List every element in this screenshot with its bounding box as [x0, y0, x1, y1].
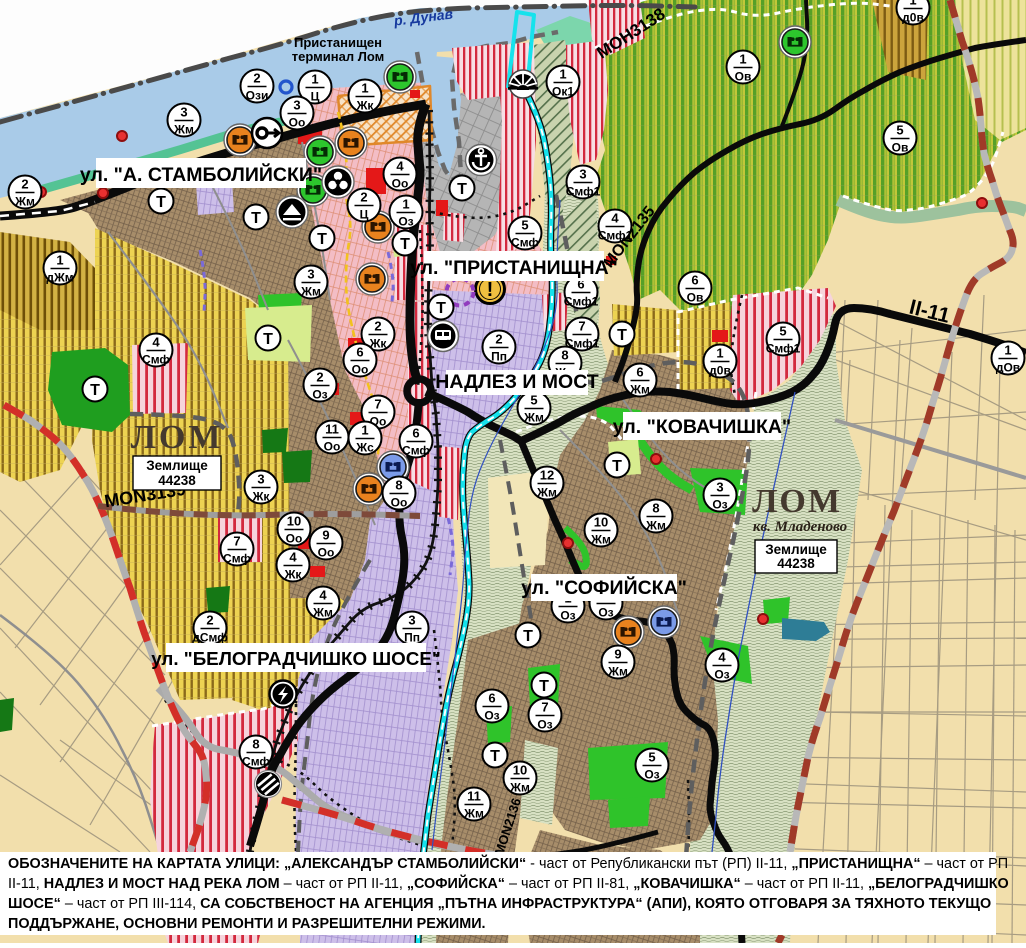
- svg-text:T: T: [400, 236, 410, 253]
- svg-text:2: 2: [316, 370, 323, 385]
- svg-text:Оз: Оз: [537, 718, 552, 732]
- svg-text:НАДЛЕЗ И МОСТ: НАДЛЕЗ И МОСТ: [435, 371, 599, 393]
- svg-text:Жк: Жк: [284, 568, 303, 582]
- svg-text:1: 1: [559, 67, 566, 82]
- svg-text:Смф: Смф: [223, 552, 251, 566]
- svg-text:Ози: Ози: [246, 89, 269, 103]
- svg-text:Жм: Жм: [509, 781, 530, 795]
- svg-text:T: T: [612, 458, 622, 475]
- svg-text:8: 8: [395, 478, 402, 493]
- svg-text:T: T: [523, 628, 533, 645]
- svg-text:Пристанищен: Пристанищен: [294, 35, 382, 50]
- svg-text:3: 3: [408, 613, 415, 628]
- svg-text:9: 9: [322, 528, 329, 543]
- svg-text:2: 2: [374, 319, 381, 334]
- svg-text:3: 3: [307, 267, 314, 282]
- svg-text:1: 1: [361, 423, 368, 438]
- svg-text:9: 9: [614, 647, 621, 662]
- svg-text:Оз: Оз: [560, 609, 575, 623]
- svg-text:10: 10: [287, 514, 301, 529]
- svg-text:5: 5: [779, 324, 786, 339]
- svg-text:ул. "БЕЛОГРАДЧИШКО ШОСЕ": ул. "БЕЛОГРАДЧИШКО ШОСЕ": [151, 648, 441, 669]
- svg-text:Жм: Жм: [300, 285, 321, 299]
- svg-text:Оз: Оз: [714, 668, 729, 682]
- svg-text:Ов: Ов: [687, 291, 704, 305]
- svg-text:3: 3: [257, 472, 264, 487]
- svg-text:12: 12: [540, 468, 554, 483]
- svg-text:Землище: Землище: [765, 542, 827, 557]
- svg-text:Смф: Смф: [402, 444, 430, 458]
- svg-text:Оз: Оз: [398, 215, 413, 229]
- svg-text:Жм: Жм: [536, 486, 557, 500]
- svg-text:1: 1: [361, 81, 368, 96]
- svg-text:T: T: [490, 748, 500, 765]
- svg-text:44238: 44238: [158, 473, 196, 488]
- svg-text:Смф1: Смф1: [598, 229, 633, 243]
- svg-text:11: 11: [325, 422, 339, 437]
- svg-text:Пп: Пп: [404, 631, 420, 645]
- svg-text:Жк: Жк: [252, 490, 271, 504]
- svg-text:T: T: [90, 382, 100, 399]
- svg-text:4: 4: [289, 550, 297, 565]
- svg-text:4: 4: [319, 588, 327, 603]
- svg-text:ул. "СОФИЙСКА": ул. "СОФИЙСКА": [521, 575, 687, 599]
- svg-text:3: 3: [579, 167, 586, 182]
- svg-text:3: 3: [716, 480, 723, 495]
- svg-text:4: 4: [152, 335, 160, 350]
- svg-text:Оо: Оо: [324, 440, 341, 454]
- svg-text:Смф1: Смф1: [566, 185, 601, 199]
- svg-text:Оз: Оз: [598, 606, 613, 620]
- svg-text:Жм: Жм: [173, 123, 194, 137]
- svg-text:ПОДДЪРЖАНЕ, ОСНОВНИ РЕМОНТИ И: ПОДДЪРЖАНЕ, ОСНОВНИ РЕМОНТИ И РАЗРЕШИТЕЛ…: [8, 916, 486, 932]
- svg-text:T: T: [251, 210, 261, 227]
- svg-text:Оо: Оо: [286, 532, 303, 546]
- svg-text:Жк: Жк: [356, 99, 375, 113]
- svg-text:T: T: [617, 327, 627, 344]
- svg-text:Оз: Оз: [644, 768, 659, 782]
- svg-text:Жс: Жс: [355, 441, 374, 455]
- svg-text:Жм: Жм: [607, 665, 628, 679]
- svg-text:10: 10: [594, 515, 608, 530]
- svg-text:7: 7: [541, 700, 548, 715]
- svg-text:ул. "КОВАЧИШКА": ул. "КОВАЧИШКА": [613, 416, 791, 438]
- svg-text:ул. "ПРИСТАНИЩНА": ул. "ПРИСТАНИЩНА": [410, 257, 618, 279]
- svg-text:Жм: Жм: [590, 533, 611, 547]
- svg-text:Смф: Смф: [242, 755, 270, 769]
- svg-text:2: 2: [253, 71, 260, 86]
- svg-text:II-11, НАДЛЕЗ И МОСТ НАД РЕКА: II-11, НАДЛЕЗ И МОСТ НАД РЕКА ЛОМ – част…: [8, 874, 1009, 892]
- svg-text:6: 6: [691, 273, 698, 288]
- svg-text:1: 1: [1004, 343, 1011, 358]
- svg-text:д0в: д0в: [902, 11, 924, 25]
- svg-text:дСмф: дСмф: [192, 631, 228, 645]
- svg-text:Пп: Пп: [491, 350, 507, 364]
- svg-text:Оз: Оз: [484, 709, 499, 723]
- svg-text:T: T: [539, 678, 549, 695]
- svg-text:7: 7: [578, 319, 585, 334]
- svg-text:Оз: Оз: [312, 388, 327, 402]
- svg-text:1: 1: [716, 346, 723, 361]
- svg-text:T: T: [436, 300, 446, 317]
- svg-text:1: 1: [909, 0, 916, 8]
- svg-text:ОБОЗНАЧЕНИТЕ НА КАРТАТА УЛИЦИ:: ОБОЗНАЧЕНИТЕ НА КАРТАТА УЛИЦИ: „АЛЕКСАНД…: [8, 854, 1008, 872]
- svg-text:Жм: Жм: [312, 606, 333, 620]
- svg-text:3: 3: [180, 105, 187, 120]
- svg-text:Смф: Смф: [142, 353, 170, 367]
- svg-text:4: 4: [718, 650, 726, 665]
- svg-text:Землище: Землище: [146, 458, 208, 473]
- svg-text:5: 5: [521, 218, 528, 233]
- svg-text:д0в: д0в: [709, 364, 731, 378]
- svg-text:Оо: Оо: [318, 546, 335, 560]
- svg-text:11: 11: [467, 789, 481, 804]
- svg-text:Жм: Жм: [523, 411, 544, 425]
- svg-text:Ов: Ов: [892, 141, 909, 155]
- svg-text:Смф1: Смф1: [564, 295, 599, 309]
- svg-text:терминал Лом: терминал Лом: [292, 49, 384, 64]
- svg-text:дОв: дОв: [996, 361, 1020, 375]
- svg-text:1: 1: [56, 253, 63, 268]
- svg-text:8: 8: [252, 737, 259, 752]
- svg-text:6: 6: [412, 426, 419, 441]
- svg-text:Оз: Оз: [712, 498, 727, 512]
- svg-text:Оо: Оо: [392, 177, 409, 191]
- svg-text:4: 4: [611, 211, 619, 226]
- svg-text:Ок1: Ок1: [552, 85, 574, 99]
- svg-text:Жм: Жм: [463, 807, 484, 821]
- svg-text:8: 8: [652, 501, 659, 516]
- svg-text:T: T: [263, 331, 273, 348]
- svg-text:ЛОМ: ЛОМ: [752, 483, 842, 520]
- svg-text:44238: 44238: [777, 556, 815, 571]
- svg-text:7: 7: [374, 397, 381, 412]
- svg-text:2: 2: [206, 613, 213, 628]
- svg-text:Ов: Ов: [735, 70, 752, 84]
- svg-text:1: 1: [402, 197, 409, 212]
- svg-text:ШОСЕ“ – част от РП III-114, СА: ШОСЕ“ – част от РП III-114, СА СОБСТВЕНО…: [8, 896, 991, 912]
- svg-text:8: 8: [561, 348, 568, 363]
- svg-text:!: !: [487, 279, 494, 301]
- svg-text:ул. "А. СТАМБОЛИЙСКИ": ул. "А. СТАМБОЛИЙСКИ": [80, 162, 322, 186]
- svg-text:5: 5: [896, 123, 903, 138]
- svg-text:1: 1: [739, 52, 746, 67]
- svg-text:2: 2: [495, 332, 502, 347]
- svg-text:T: T: [156, 194, 166, 211]
- svg-text:3: 3: [293, 98, 300, 113]
- svg-text:7: 7: [233, 534, 240, 549]
- svg-text:5: 5: [648, 750, 655, 765]
- svg-text:6: 6: [488, 691, 495, 706]
- svg-text:Смф: Смф: [511, 236, 539, 250]
- svg-text:Жм: Жм: [14, 195, 35, 209]
- svg-text:кв. Младеново: кв. Младеново: [753, 519, 847, 535]
- svg-text:6: 6: [356, 345, 363, 360]
- svg-text:4: 4: [396, 159, 404, 174]
- svg-text:Ц: Ц: [360, 208, 369, 222]
- svg-text:Оо: Оо: [391, 496, 408, 510]
- svg-text:Оо: Оо: [289, 116, 306, 130]
- svg-text:ЛОМ: ЛОМ: [131, 419, 224, 456]
- svg-text:Жм: Жм: [629, 383, 650, 397]
- svg-text:T: T: [457, 181, 467, 198]
- svg-text:Оо: Оо: [352, 363, 369, 377]
- svg-text:2: 2: [21, 177, 28, 192]
- svg-text:6: 6: [636, 365, 643, 380]
- svg-text:2: 2: [360, 190, 367, 205]
- svg-text:Жм: Жм: [645, 519, 666, 533]
- svg-text:дЖм: дЖм: [46, 271, 73, 285]
- svg-text:1: 1: [311, 72, 318, 87]
- svg-text:Ц: Ц: [311, 90, 320, 104]
- svg-text:T: T: [317, 231, 327, 248]
- svg-text:Смф1: Смф1: [766, 342, 801, 356]
- svg-text:10: 10: [513, 763, 527, 778]
